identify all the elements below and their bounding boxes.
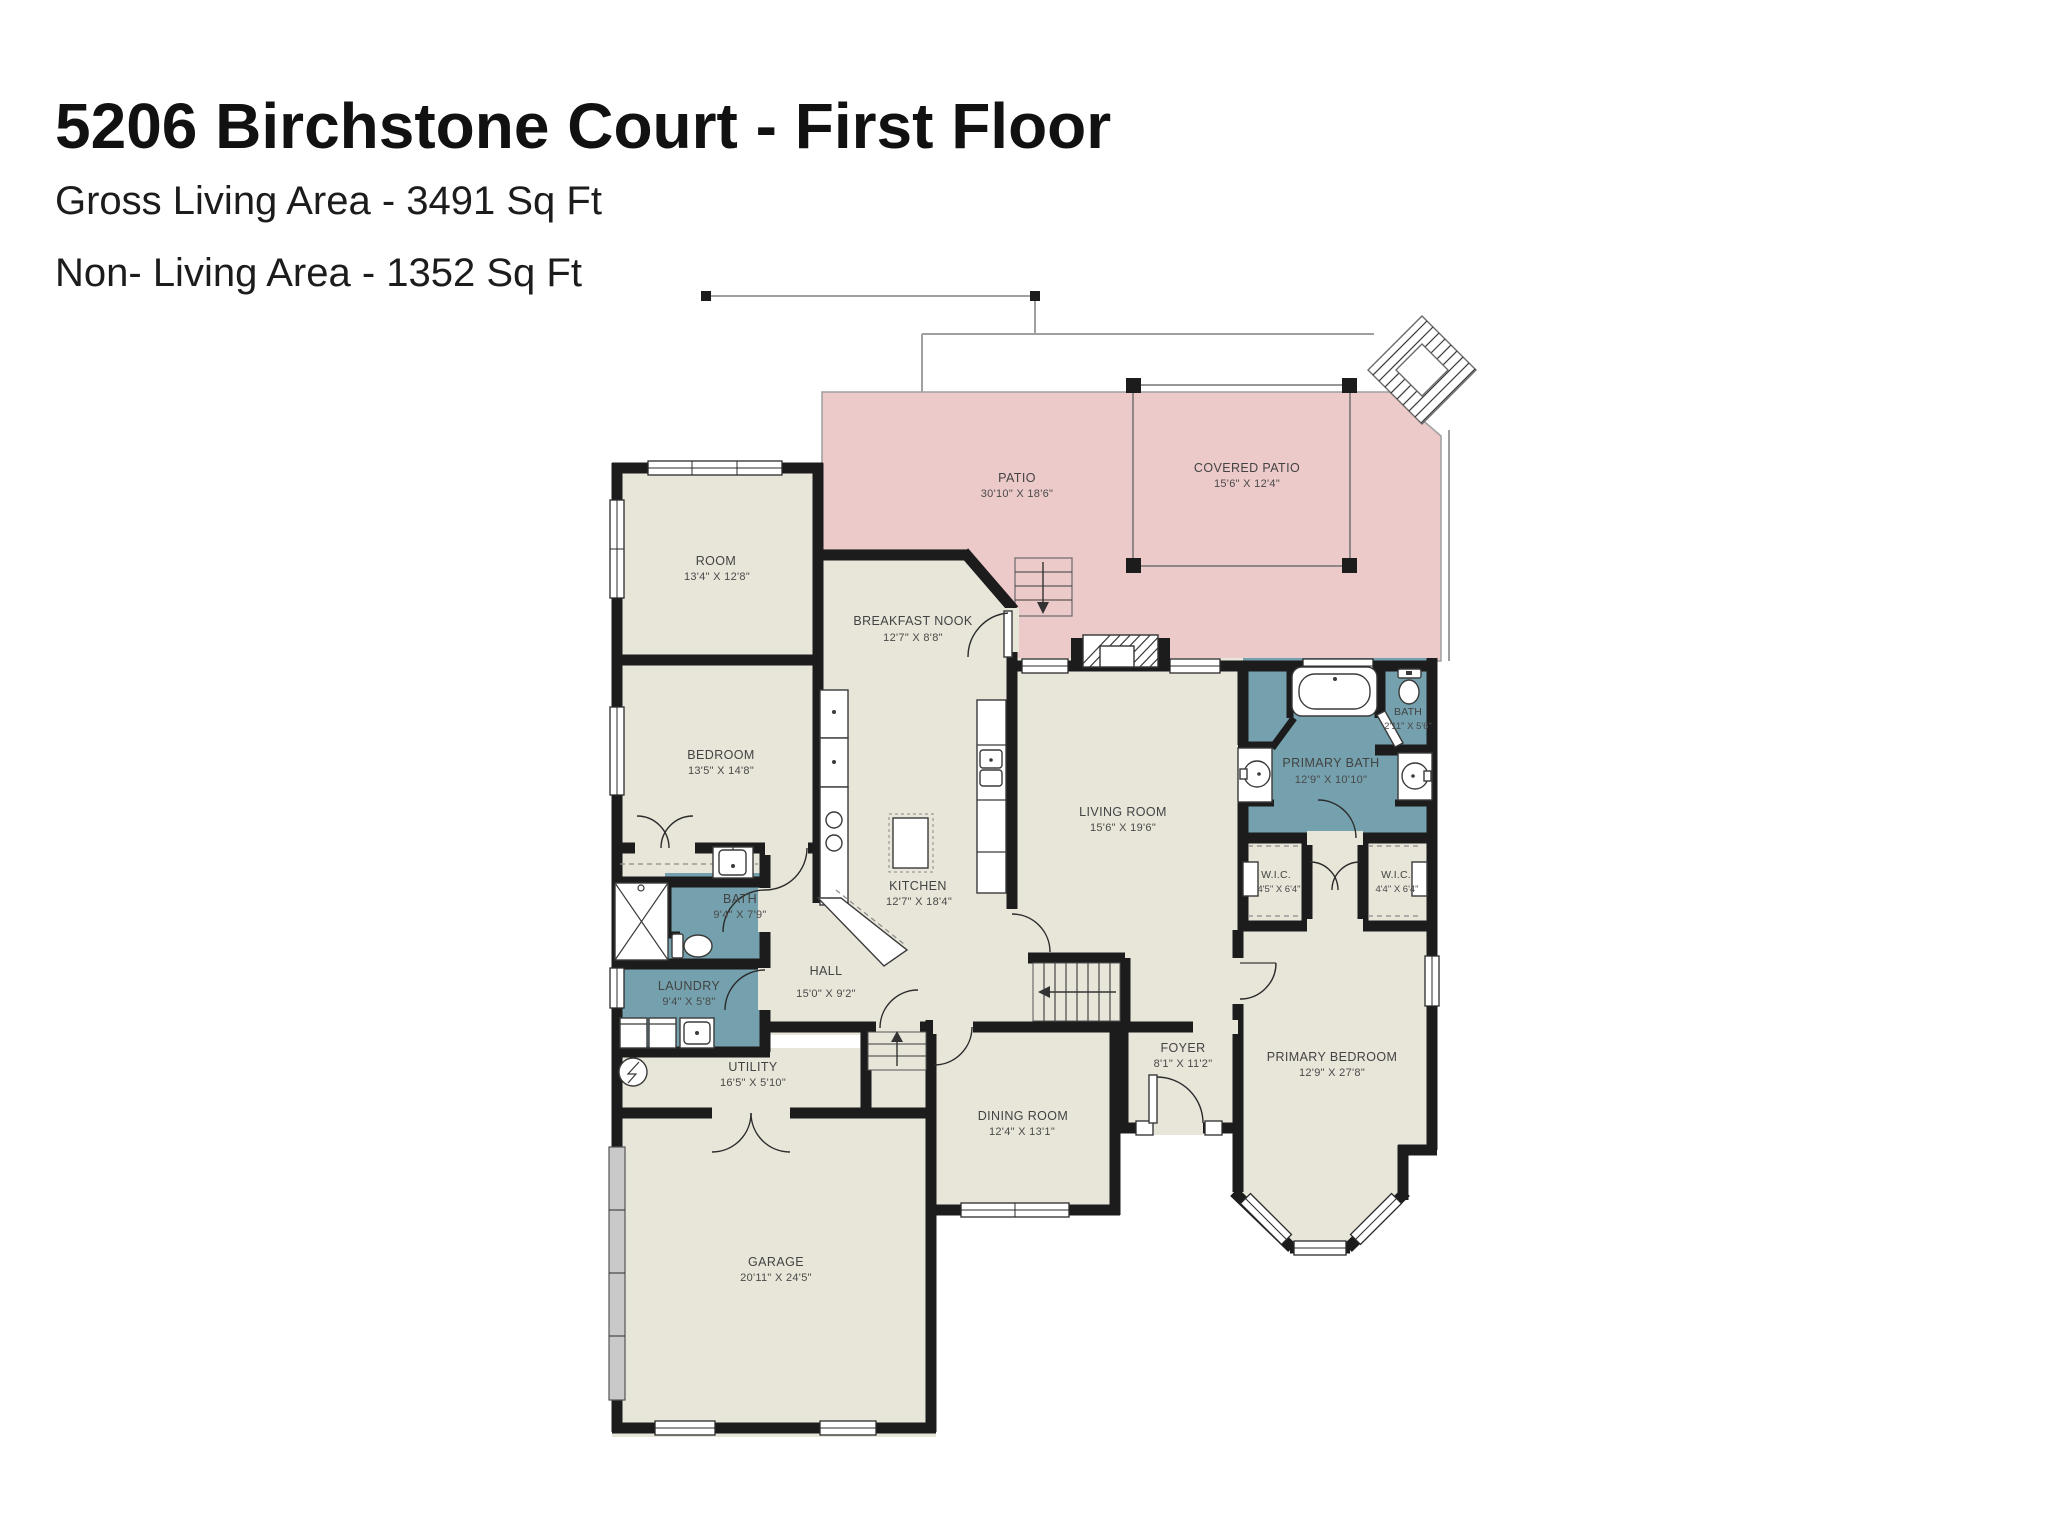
label-dims: 15'0" X 9'2": [796, 988, 856, 1000]
water-heater-icon: [619, 1058, 647, 1086]
window-dining-bottom: [961, 1203, 1069, 1217]
screen-anchor: [701, 291, 711, 301]
label-dims: 30'10" X 18'6": [981, 488, 1053, 500]
gross-living-area: Gross Living Area - 3491 Sq Ft: [55, 179, 602, 223]
vanity-sink-right: [1398, 753, 1432, 800]
label-dims: 9'4" X 5'8": [662, 996, 715, 1008]
label-text: COVERED PATIO: [1194, 461, 1300, 475]
patio-post: [1126, 378, 1141, 393]
label-text: PRIMARY BATH: [1282, 756, 1379, 770]
label-dims: 15'6" X 19'6": [1090, 822, 1156, 834]
window-room-top: [648, 461, 782, 475]
label-text: ROOM: [696, 554, 737, 568]
window-laundry-left: [610, 968, 624, 1008]
shower: [615, 883, 668, 960]
label-dims: 20'11" X 24'5": [740, 1272, 812, 1284]
label-text: BATH: [1394, 706, 1422, 718]
label-text: BREAKFAST NOOK: [853, 614, 973, 628]
vanity-sink-left: [1238, 748, 1272, 802]
window-primary-bedroom-right: [1425, 956, 1439, 1006]
label-dims: 8'1" X 11'2": [1154, 1058, 1213, 1070]
label-dims: 12'7" X 18'4": [886, 896, 952, 908]
label-text: GARAGE: [748, 1255, 804, 1269]
label-dims: 4'4" X 6'4": [1375, 884, 1418, 895]
label-dims: 12'9" X 27'8": [1299, 1067, 1365, 1079]
window-room-left: [610, 500, 624, 598]
label-text: UTILITY: [728, 1060, 778, 1074]
window-bedroom-left: [610, 707, 624, 795]
floor-foyer: [1118, 1020, 1238, 1130]
label-dims: 16'5" X 5'10": [720, 1077, 786, 1089]
kitchen-right-counter: [977, 700, 1006, 893]
page-title: 5206 Birchstone Court - First Floor: [55, 90, 1111, 162]
screen-anchor: [1030, 291, 1040, 301]
toilet-icon: [672, 934, 712, 958]
header: 5206 Birchstone Court - First Floor Gros…: [55, 90, 1111, 295]
bath-vanity: [713, 846, 753, 878]
toilet-room-toilet-icon: [1398, 669, 1421, 704]
label-dims: 15'6" X 12'4": [1214, 478, 1280, 490]
label-text: HALL: [810, 964, 843, 978]
floorplan-canvas: 5206 Birchstone Court - First Floor Gros…: [0, 0, 2048, 1536]
label-text: BEDROOM: [687, 748, 754, 762]
bathtub: [1292, 667, 1377, 716]
label-dims: 2'11" X 5'6": [1384, 721, 1432, 732]
label-text: BATH: [723, 892, 757, 906]
label-text: LAUNDRY: [658, 979, 721, 993]
label-text: W.I.C.: [1381, 869, 1411, 881]
label-text: FOYER: [1160, 1041, 1205, 1055]
dining-steps: [868, 1031, 926, 1070]
non-living-area: Non- Living Area - 1352 Sq Ft: [55, 251, 582, 295]
floorplan-page: 5206 Birchstone Court - First Floor Gros…: [0, 0, 2048, 1536]
label-text: DINING ROOM: [978, 1109, 1069, 1123]
label-text: PATIO: [998, 471, 1036, 485]
firebox: [1100, 646, 1134, 667]
label-text: LIVING ROOM: [1079, 805, 1167, 819]
kitchen-cabinets: [820, 690, 848, 905]
label-text: W.I.C.: [1261, 869, 1291, 881]
label-dims: 13'4" X 12'8": [684, 571, 750, 583]
label-text: PRIMARY BEDROOM: [1267, 1050, 1398, 1064]
label-dims: 13'5" X 14'8": [688, 765, 754, 777]
label-dims: 12'9" X 10'10": [1295, 774, 1367, 786]
label-dims: 12'7" X 8'8": [883, 632, 943, 644]
kitchen-island: [889, 814, 933, 872]
label-text: KITCHEN: [889, 879, 947, 893]
label-dims: 9'4" X 7'9": [713, 909, 766, 921]
patio-post: [1342, 558, 1357, 573]
utility-sink: [680, 1018, 714, 1048]
label-dims: 4'5" X 6'4": [1257, 884, 1300, 895]
label-dims: 12'4" X 13'1": [989, 1126, 1055, 1138]
patio-post: [1126, 558, 1141, 573]
main-staircase: [1033, 963, 1120, 1021]
patio-post: [1342, 378, 1357, 393]
patio-steps: [1015, 558, 1072, 616]
garage-door-band: [609, 1147, 625, 1400]
